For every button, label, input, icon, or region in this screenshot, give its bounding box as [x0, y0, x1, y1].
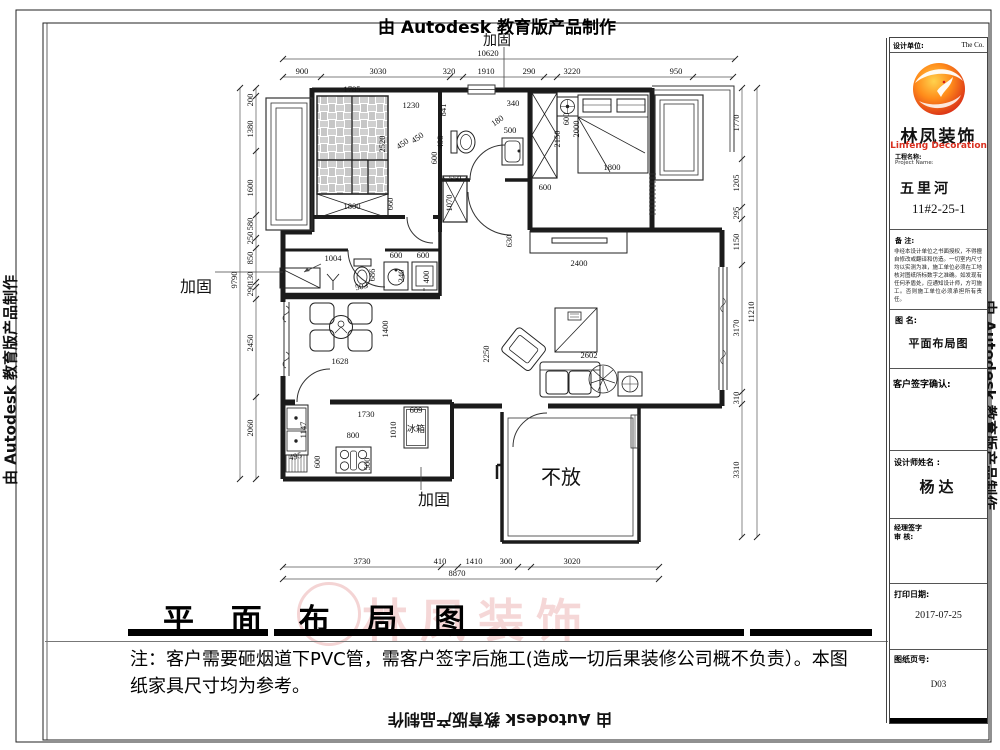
dim-label: 600 — [312, 456, 322, 469]
dim-chain: 373041014103003020 — [280, 556, 662, 570]
dim-label: 609 — [410, 405, 423, 415]
dim-label: 410 — [434, 556, 447, 566]
drawing-name-label: 图 名: — [895, 315, 917, 326]
dim-label: 2150 — [552, 131, 562, 148]
dim-chain: 900303032019102903220950 — [280, 66, 736, 80]
dim-label: 500 — [504, 125, 517, 135]
sheet-number: D03 — [890, 679, 987, 689]
corner-table — [555, 308, 597, 352]
dim-label: 300 — [500, 556, 513, 566]
title-block-outer-line — [886, 38, 887, 723]
title-underline-bar — [128, 629, 268, 636]
dim-label: 630 — [504, 235, 514, 248]
designer-label: 设计师姓名 : — [894, 457, 940, 468]
dim-label: 130 — [245, 272, 255, 285]
dim-label: 495 — [288, 450, 303, 462]
note-divider — [45, 641, 888, 642]
shoe-cabinet — [280, 268, 320, 288]
dim-label: 2450 — [245, 335, 255, 352]
construction-note: 注：客户需要砸烟道下PVC管，需客户签字后施工(造成一切后果装修公司概不负责）。… — [130, 646, 875, 700]
dim-label: 1070 — [444, 195, 454, 212]
sheet-label: 图纸页号: — [894, 654, 929, 665]
title-underline-bar — [750, 629, 872, 636]
dim-label: 11210 — [746, 302, 756, 323]
dim-label: 1230 — [403, 100, 420, 110]
autodesk-banner-top: 由 Autodesk 教育版产品制作 — [378, 13, 616, 38]
dim-label: 2250 — [481, 346, 491, 363]
dim-label: 1628 — [332, 356, 349, 366]
dim-label: 3030 — [370, 66, 387, 76]
dim-label: 600 — [417, 250, 430, 260]
divider — [890, 649, 987, 650]
title-underline-bar — [274, 629, 744, 636]
dim-label: 850 — [245, 252, 255, 265]
furniture — [280, 93, 648, 473]
dim-label: 900 — [296, 66, 309, 76]
room-label: 不放 — [541, 465, 581, 489]
dim-label: 340 — [396, 270, 406, 283]
dim-label: 2520 — [377, 136, 387, 153]
dim-label: 2060 — [245, 420, 255, 437]
dim-label: 800 — [347, 430, 360, 440]
room-label: 冰箱 — [407, 423, 425, 435]
dim-label: 2000 — [571, 121, 581, 138]
divider — [890, 309, 987, 310]
divider — [890, 52, 987, 53]
dim-label: 600 — [429, 152, 439, 165]
divider — [890, 229, 987, 230]
print-date: 2017-07-25 — [890, 610, 987, 621]
room-label: 加固 — [418, 490, 450, 509]
dim-label: 1147 — [298, 422, 308, 439]
divider — [890, 450, 987, 451]
note-line-1: 注：客户需要砸烟道下PVC管，需客户签字后施工(造成一切后果装修公司概不负责）。… — [130, 646, 875, 673]
dim-label: 1010 — [388, 422, 398, 439]
dim-label: 600 — [539, 182, 552, 192]
dim-label: 1205 — [731, 175, 741, 192]
autodesk-banner-bottom: 由 Autodesk 教育版产品制作 — [388, 709, 612, 733]
dim-label: 1785 — [344, 84, 361, 94]
dim-label: 1910 — [478, 66, 495, 76]
plant — [589, 365, 617, 393]
project-name: 五里河 — [900, 178, 951, 198]
dim-label: 498 — [435, 136, 445, 149]
divider — [890, 518, 987, 519]
dim-label: 320 — [443, 66, 456, 76]
remark-text: 非经本设计单位之书面授权，不得擅自修改或翻译和仿造。一切室内尺寸均以实测为准，施… — [894, 248, 982, 304]
dim-label: 580 — [245, 218, 255, 231]
toilet-main-bath — [451, 131, 475, 153]
design-unit-label: 设计单位: — [893, 41, 924, 51]
dim-label: 450 — [394, 136, 410, 152]
dim-label: 550 — [449, 173, 462, 183]
dim-label: 600 — [390, 250, 403, 260]
dim-chain: 2001380160058025085013029024502060 — [245, 85, 259, 482]
project-label-en: Project Name: — [895, 160, 934, 166]
dim-label: 10620 — [477, 48, 498, 58]
dim-label: 9790 — [229, 272, 239, 289]
dim-chain: 9790 — [229, 85, 243, 482]
logo-phoenix-eye — [943, 81, 946, 84]
print-date-label: 打印日期: — [894, 589, 929, 600]
dim-label: 200 — [245, 94, 255, 107]
coat-hook — [327, 274, 339, 290]
dim-label: 290 — [523, 66, 536, 76]
designer-name: 杨达 — [890, 476, 987, 497]
dim-label: 1800 — [344, 201, 361, 211]
dim-label: 3020 — [564, 556, 581, 566]
dim-label: 3170 — [731, 320, 741, 337]
dim-chain: 8870 — [280, 568, 662, 582]
dimension-layer: 1062090030303201910290322095020013801600… — [229, 48, 760, 582]
dim-label: 841 — [438, 104, 448, 117]
dim-label: 8870 — [449, 568, 466, 578]
linfeng-logo — [911, 61, 967, 117]
remark-label: 备 注: — [895, 236, 914, 246]
dim-label: 2602 — [581, 350, 598, 360]
dim-label: 660 — [385, 198, 395, 211]
client-sign-label: 客户签字确认: — [893, 377, 951, 390]
dim-label: 500 — [362, 458, 372, 471]
dim-label: 1770 — [731, 115, 741, 132]
dim-chain: 17701205295115031703103310 — [731, 85, 745, 540]
room-label: 加固 — [180, 277, 212, 296]
vanity-main-bath — [502, 138, 523, 165]
dim-label: 3220 — [564, 66, 581, 76]
divider — [890, 583, 987, 584]
dim-label: 686 — [367, 269, 377, 282]
dim-label: 340 — [507, 98, 520, 108]
dim-chain: 10620 — [280, 48, 738, 62]
dim-label: 1800 — [604, 162, 621, 172]
dim-label: 1004 — [325, 253, 343, 263]
dim-label: 1380 — [245, 121, 255, 138]
tv-cabinet — [530, 231, 627, 253]
dim-chain: 11210 — [746, 85, 760, 540]
autodesk-banner-left: 由 Autodesk 教育版产品制作 — [0, 275, 21, 485]
divider — [890, 368, 987, 369]
dining-set — [310, 303, 372, 351]
side-table — [618, 372, 642, 396]
dim-label: 600 — [561, 113, 571, 126]
title-block: 设计单位: The Co. 林凤装饰 Linfeng Decoration 工程… — [889, 37, 988, 724]
dim-label: 250 — [245, 232, 255, 245]
dim-label: 1150 — [731, 234, 741, 251]
title-block-footer-bar — [890, 718, 987, 723]
review-label: 审 核: — [894, 532, 913, 542]
dim-label: 950 — [670, 66, 683, 76]
company-name-en: Linfeng Decoration — [890, 141, 987, 151]
dim-label: 400 — [421, 271, 431, 284]
dim-label: 310 — [731, 392, 741, 405]
dim-label: 2400 — [571, 258, 588, 268]
dim-label: 1730 — [358, 409, 375, 419]
dim-label: 450 — [409, 130, 425, 146]
dim-label: 3730 — [354, 556, 371, 566]
dim-label: 290 — [245, 284, 255, 297]
dim-label: 295 — [731, 207, 741, 220]
design-unit-value: The Co. — [961, 41, 984, 49]
project-number: 11#2-25-1 — [912, 201, 966, 217]
note-line-2: 纸家具尺寸均为参考。 — [130, 673, 875, 700]
dim-label: 1400 — [380, 321, 390, 338]
dim-label: 3310 — [731, 462, 741, 479]
sofa — [540, 362, 600, 397]
dim-label: 1600 — [245, 180, 255, 197]
drawing-name: 平面布局图 — [890, 335, 987, 351]
blueprint-page: 1062090030303201910290322095020013801600… — [0, 0, 1000, 750]
dim-label: 1410 — [466, 556, 483, 566]
